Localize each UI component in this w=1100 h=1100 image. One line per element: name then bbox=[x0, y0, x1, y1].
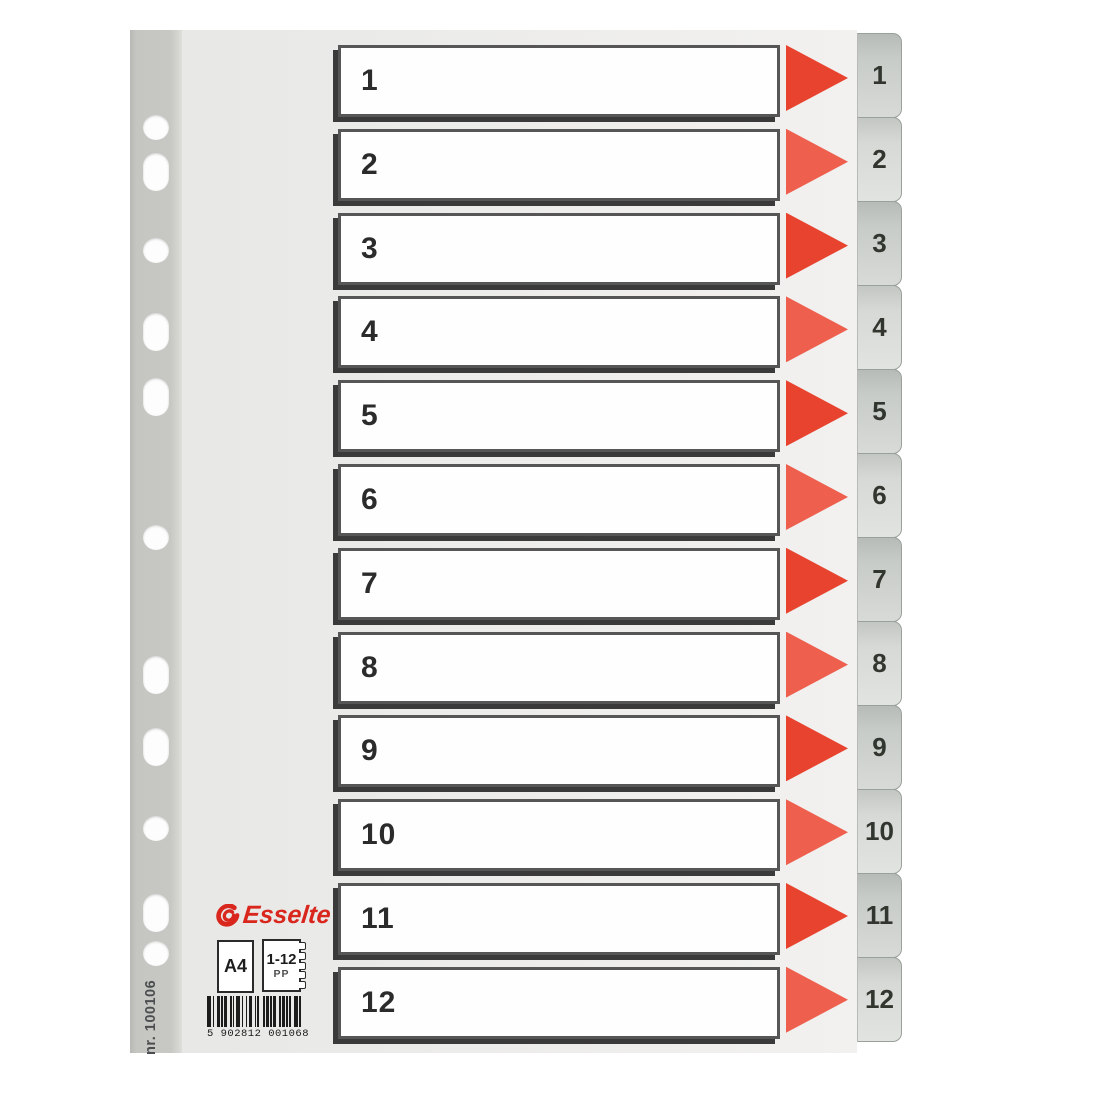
index-tab-number: 7 bbox=[872, 564, 886, 595]
esselte-swirl-icon bbox=[215, 904, 242, 928]
index-tab: 3 bbox=[857, 201, 902, 286]
red-arrows bbox=[130, 30, 857, 1053]
red-arrow-icon bbox=[786, 967, 848, 1033]
mini-tab-icon bbox=[299, 971, 306, 979]
red-arrow-icon bbox=[786, 296, 848, 362]
format-badge: A4 bbox=[217, 940, 254, 993]
index-tab-number: 9 bbox=[872, 732, 886, 763]
index-tab: 9 bbox=[857, 705, 902, 790]
index-tab: 7 bbox=[857, 537, 902, 622]
index-tab: 12 bbox=[857, 957, 902, 1042]
index-tab-number: 10 bbox=[865, 816, 894, 847]
index-tab: 4 bbox=[857, 285, 902, 370]
index-tab: 2 bbox=[857, 117, 902, 202]
index-tab-column: 123456789101112 bbox=[857, 33, 902, 1053]
mini-index-tabs-icon bbox=[299, 942, 308, 989]
index-tab-number: 8 bbox=[872, 648, 886, 679]
index-tab-number: 3 bbox=[872, 228, 886, 259]
barcode-digits: 5 902812 001068 bbox=[207, 1028, 309, 1040]
index-tab-number: 11 bbox=[866, 900, 894, 931]
mini-tab-icon bbox=[299, 981, 306, 989]
esselte-logo: Esselte bbox=[214, 901, 332, 930]
mini-tab-icon bbox=[299, 962, 306, 970]
index-tab-number: 1 bbox=[872, 60, 886, 91]
index-tab: 11 bbox=[857, 873, 902, 958]
red-arrow-icon bbox=[786, 129, 848, 195]
index-tab: 10 bbox=[857, 789, 902, 874]
red-arrow-icon bbox=[786, 45, 848, 111]
index-tab-number: 2 bbox=[872, 144, 886, 175]
red-arrow-icon bbox=[786, 715, 848, 781]
red-arrow-icon bbox=[786, 883, 848, 949]
index-tab-number: 12 bbox=[865, 984, 894, 1015]
index-tab: 8 bbox=[857, 621, 902, 706]
product-photo-stage: nr. 100106 123456789101112 Esselte A4 1-… bbox=[0, 0, 1100, 1100]
index-tab: 6 bbox=[857, 453, 902, 538]
red-arrow-icon bbox=[786, 213, 848, 279]
format-label: A4 bbox=[224, 956, 247, 977]
mini-tab-icon bbox=[299, 942, 306, 950]
divider-sheet: nr. 100106 123456789101112 Esselte A4 1-… bbox=[130, 30, 857, 1053]
red-arrow-icon bbox=[786, 632, 848, 698]
barcode-bar bbox=[299, 996, 300, 1027]
mini-tab-icon bbox=[299, 952, 306, 960]
red-arrow-icon bbox=[786, 380, 848, 446]
range-badge: 1-12 PP bbox=[262, 939, 301, 992]
index-tab-number: 4 bbox=[872, 312, 886, 343]
index-tab: 5 bbox=[857, 369, 902, 454]
index-tab-number: 6 bbox=[872, 480, 886, 511]
red-arrow-icon bbox=[786, 548, 848, 614]
index-tab: 1 bbox=[857, 33, 902, 118]
index-tab-number: 5 bbox=[872, 396, 886, 427]
barcode: 5 902812 001068 bbox=[207, 996, 309, 1040]
red-arrow-icon bbox=[786, 464, 848, 530]
brand-name: Esselte bbox=[241, 901, 332, 930]
range-label: 1-12 bbox=[266, 951, 296, 968]
material-label: PP bbox=[273, 968, 289, 981]
red-arrow-icon bbox=[786, 799, 848, 865]
barcode-bars-icon bbox=[207, 996, 309, 1027]
